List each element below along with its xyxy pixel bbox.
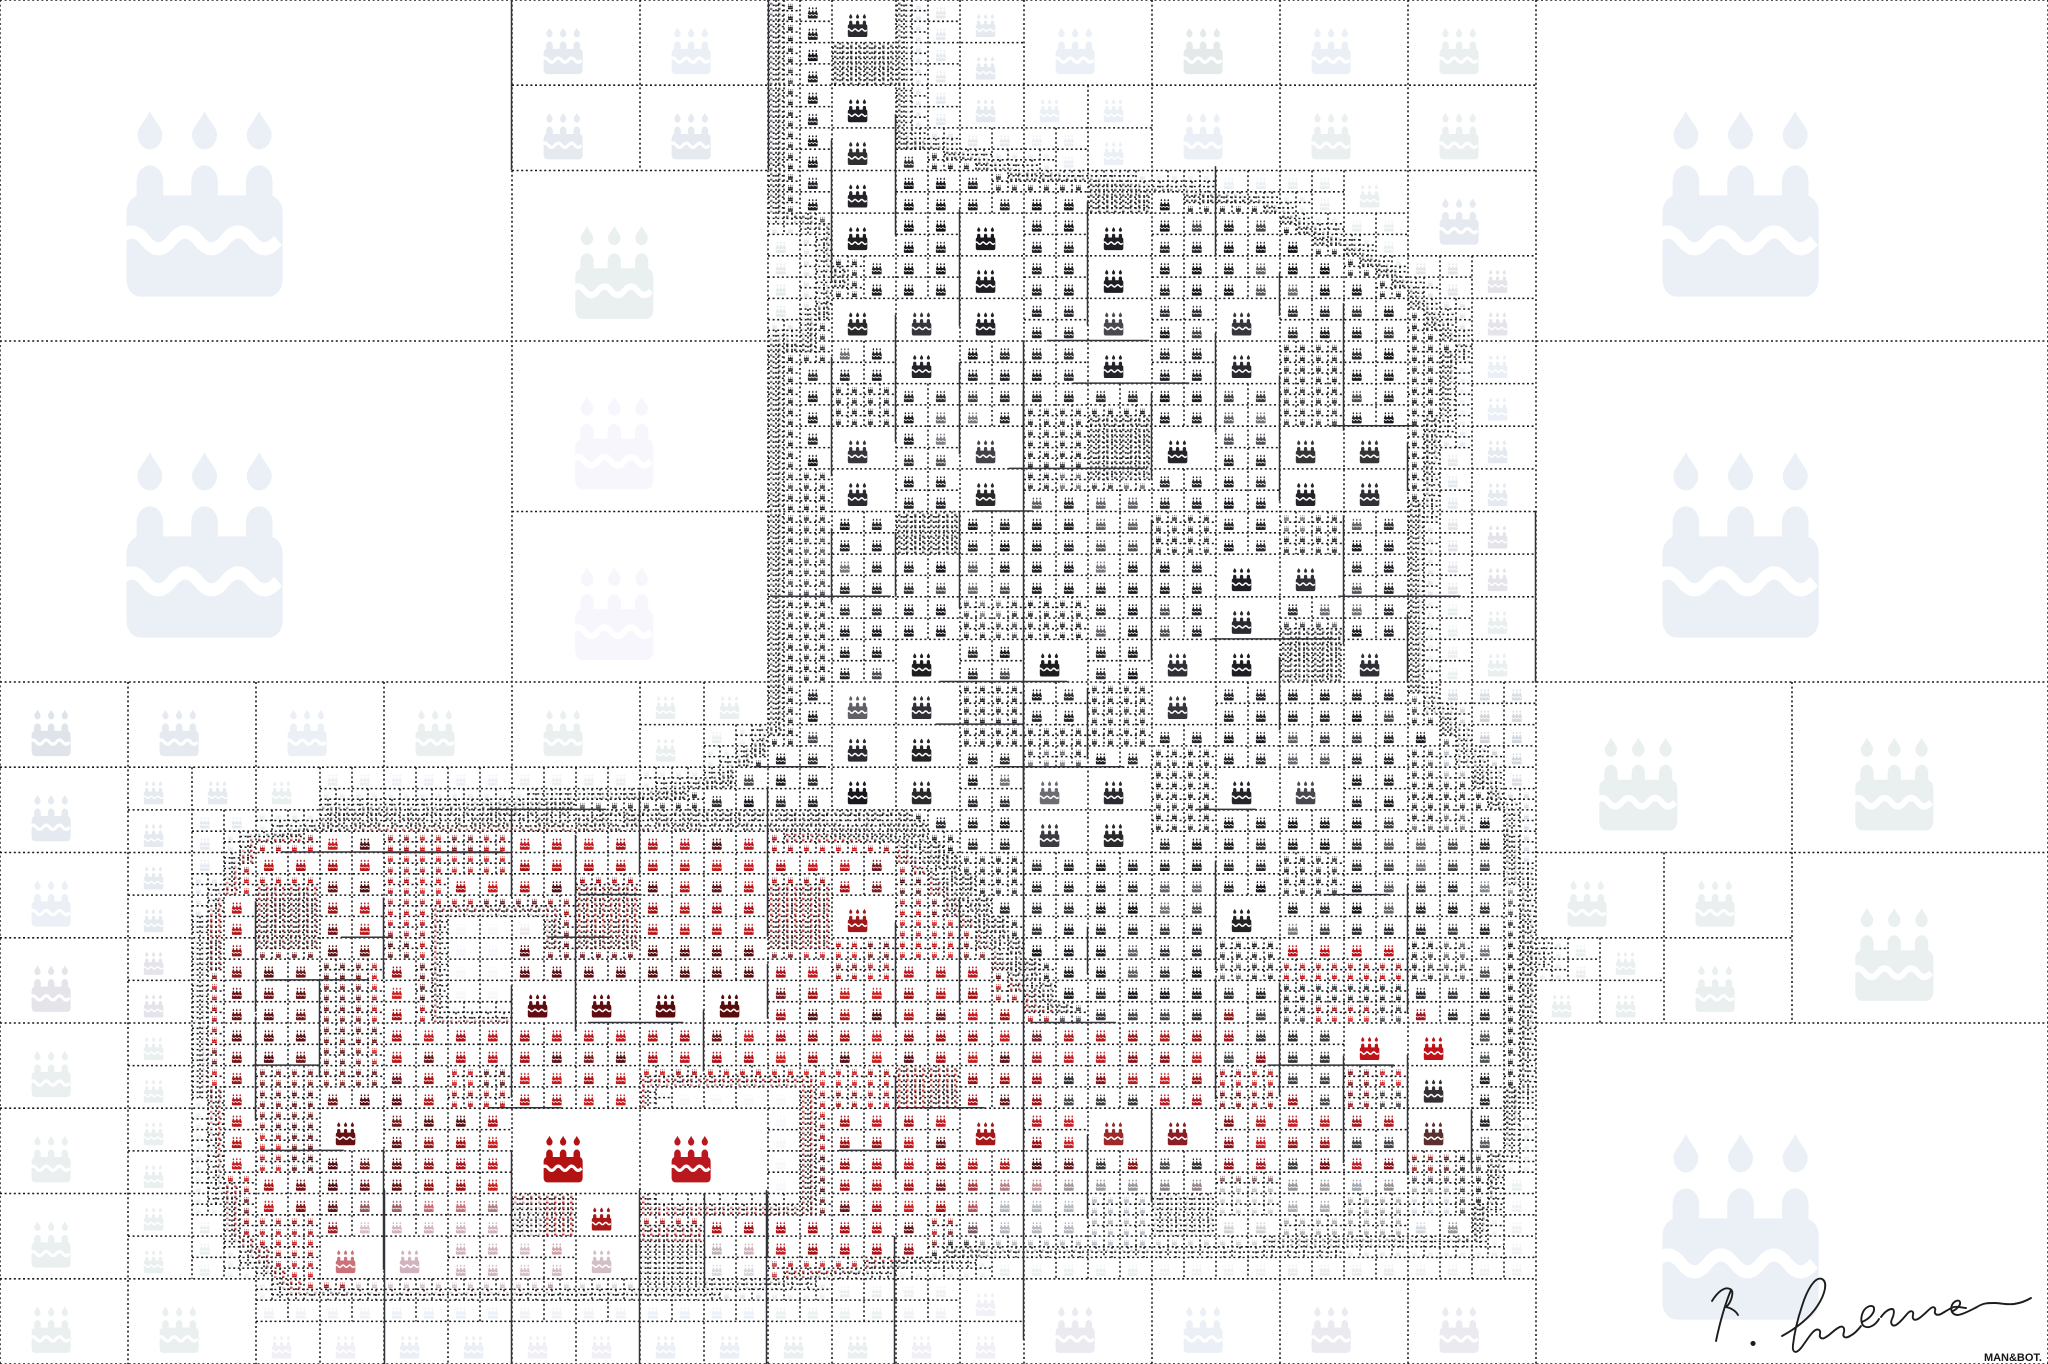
- svg-text:MAN&BOT.: MAN&BOT.: [1984, 1352, 2042, 1364]
